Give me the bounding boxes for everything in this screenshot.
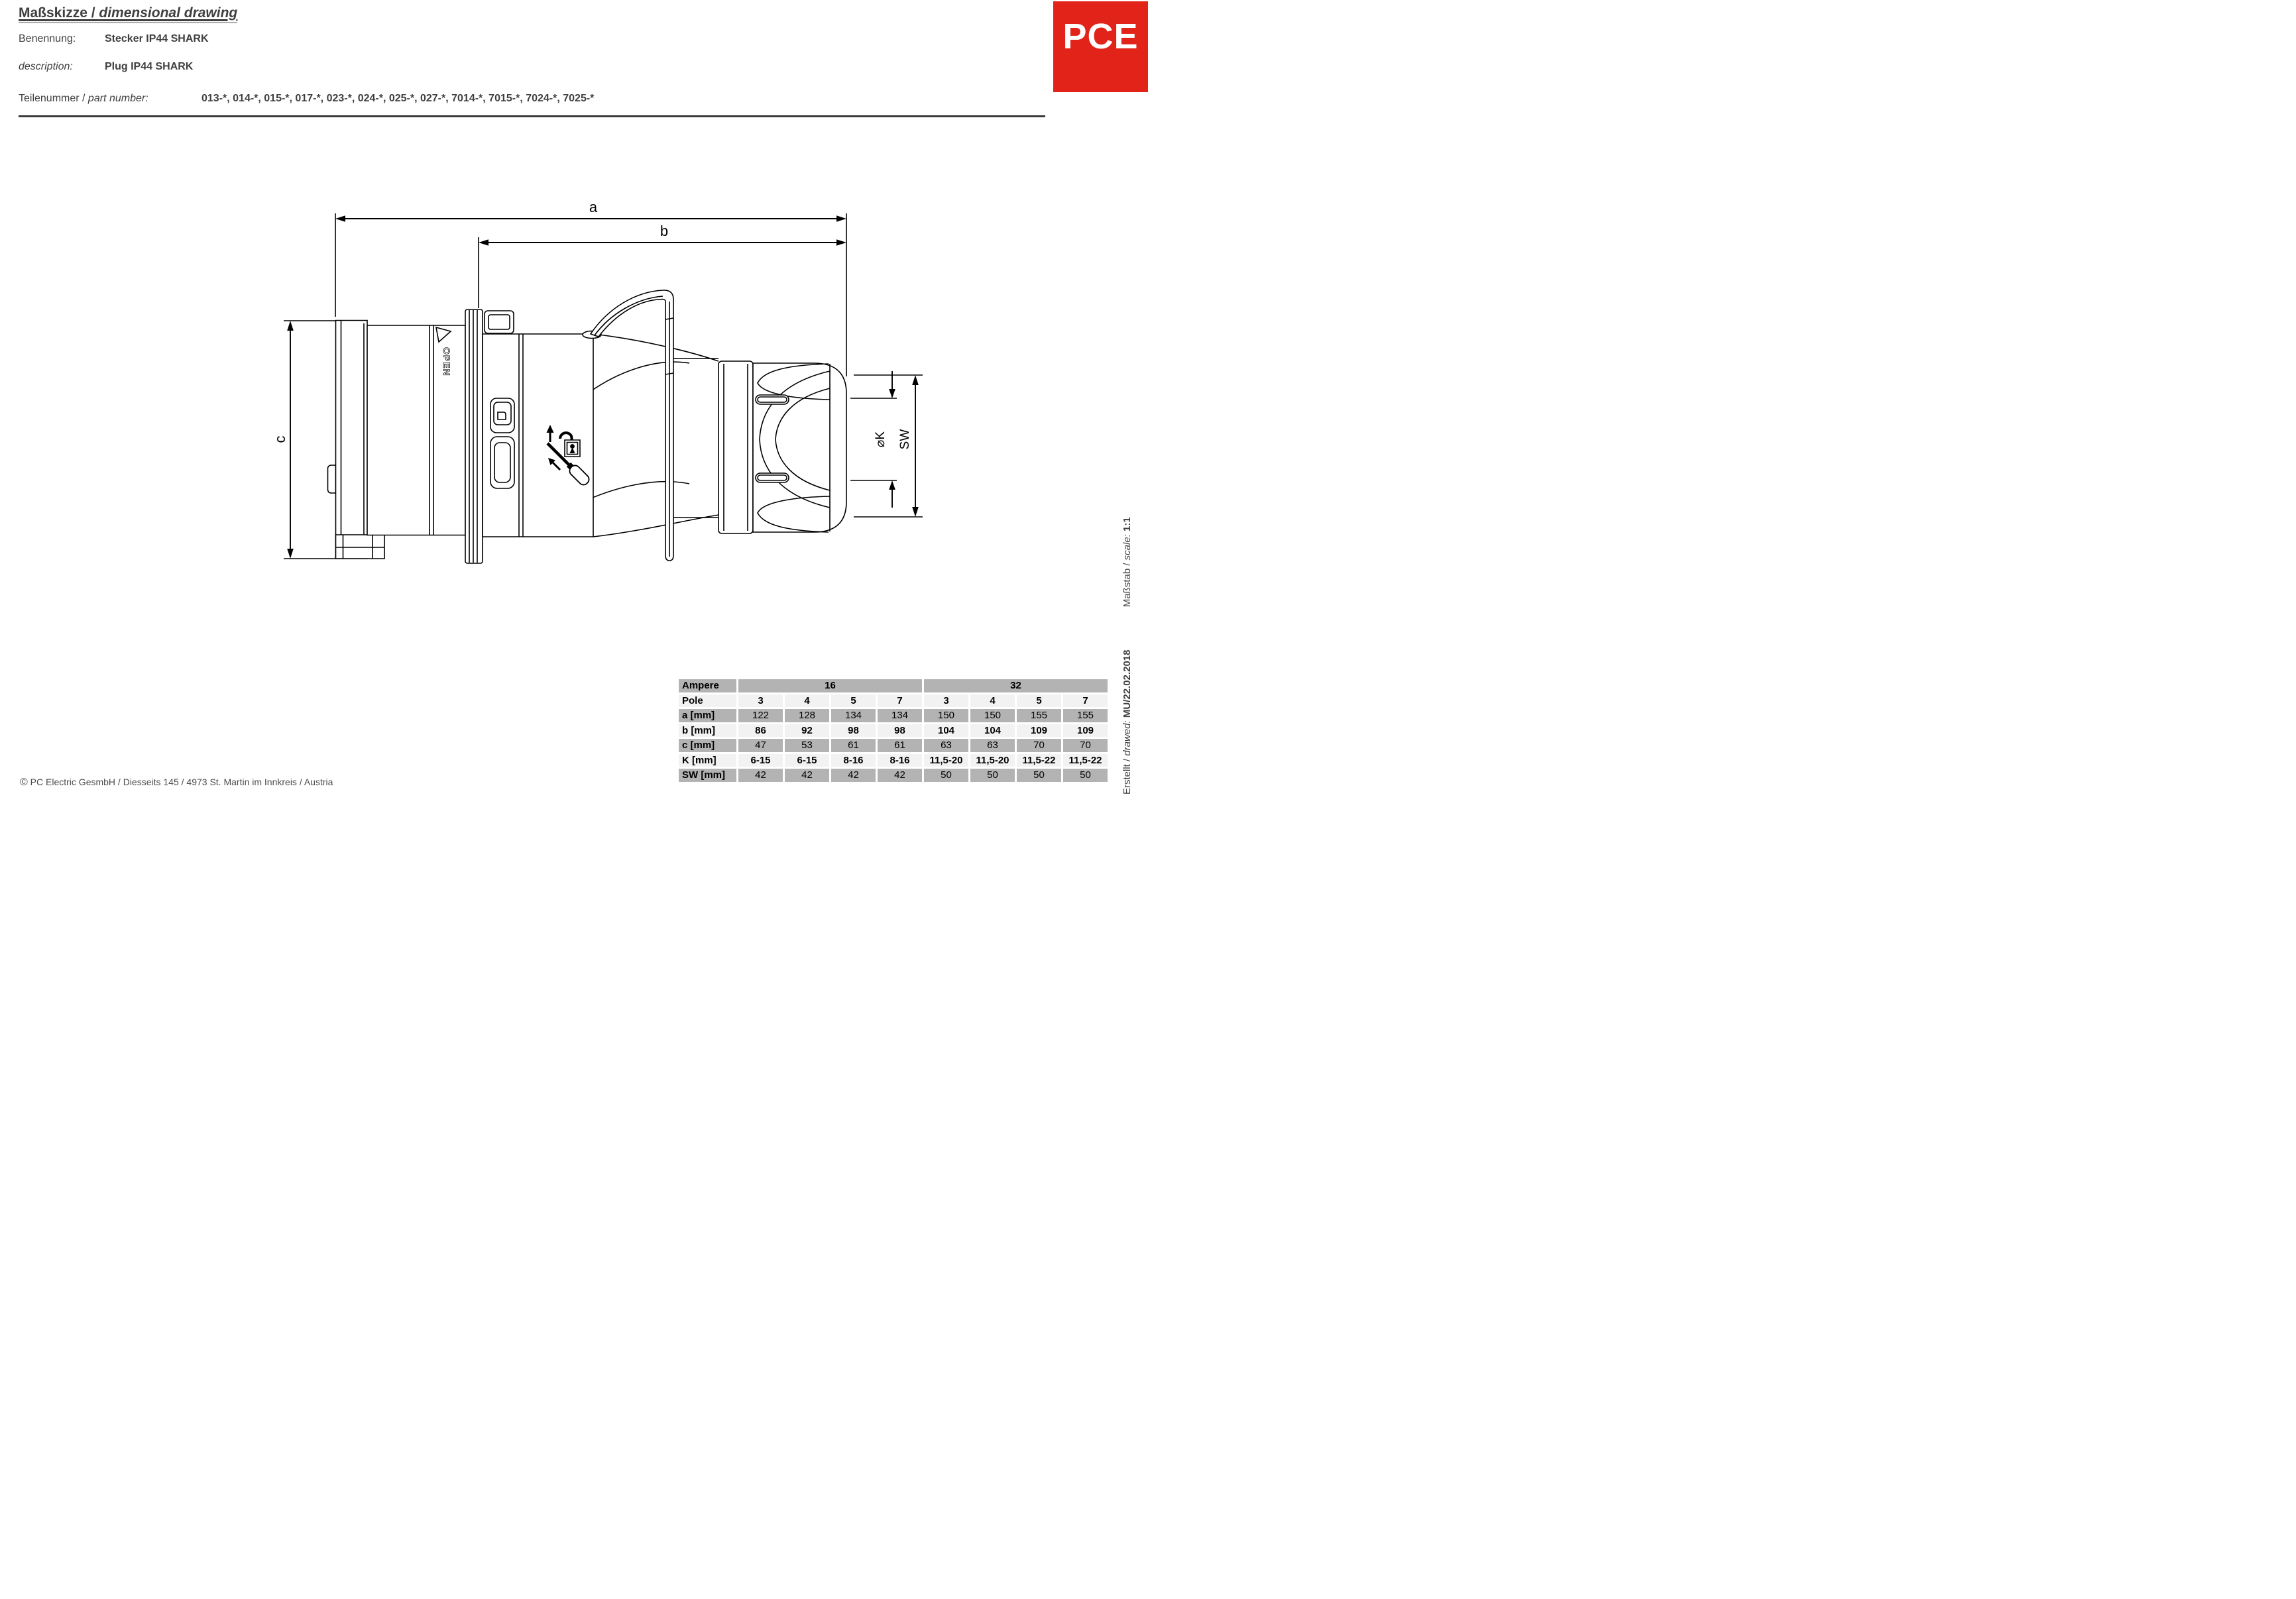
drawed-value: MU/22.02.2018 <box>1121 650 1133 718</box>
copyright-icon: © <box>20 777 28 788</box>
dimension-table: Ampere 16 32 Pole 3 4 5 7 3 4 5 7 a [mm]… <box>679 679 1108 782</box>
dim-a-label: a <box>589 199 598 215</box>
pole-label: Pole <box>679 694 736 708</box>
open-label: OPEN <box>441 347 452 376</box>
body-rear-section: OPEN <box>367 325 465 535</box>
dim-b-label: b <box>660 223 668 239</box>
table-row-b: b [mm] 86 92 98 98 104 104 109 109 <box>679 724 1108 738</box>
dim-k-label: ⌀K <box>874 431 888 447</box>
dimension-k: ⌀K <box>850 371 897 508</box>
dimension-sw: SW <box>854 375 923 517</box>
body-front-section <box>483 311 593 537</box>
rear-cap-bump <box>328 465 336 493</box>
ampere-label: Ampere <box>679 679 736 692</box>
dimension-c: c <box>272 321 335 559</box>
drawing-info-sidebar: Erstellt / drawed: MU/22.02.2018 Maßstab… <box>1121 490 1135 795</box>
fin-slot-upper <box>756 395 789 404</box>
plug-cone-section <box>582 334 718 537</box>
ampere-32: 32 <box>924 679 1108 692</box>
locking-ring <box>465 309 483 563</box>
release-lever <box>583 290 673 561</box>
dim-sw-label: SW <box>898 429 912 450</box>
table-row-pole: Pole 3 4 5 7 3 4 5 7 <box>679 694 1108 708</box>
copyright-line: © PC Electric GesmbH / Diesseits 145 / 4… <box>20 777 333 789</box>
fin-slot-lower <box>756 473 789 482</box>
table-row-sw: SW [mm] 42 42 42 42 50 50 50 50 <box>679 769 1108 782</box>
gland-flange <box>718 361 753 533</box>
table-row-k: K [mm] 6-15 6-15 8-16 8-16 11,5-20 11,5-… <box>679 754 1108 767</box>
table-row-a: a [mm] 122 128 134 134 150 150 155 155 <box>679 709 1108 722</box>
table-row-ampere: Ampere 16 32 <box>679 679 1108 692</box>
scale-value: 1:1 <box>1121 517 1133 531</box>
dim-c-label: c <box>272 436 288 443</box>
table-row-c: c [mm] 47 53 61 61 63 63 70 70 <box>679 739 1108 752</box>
datasheet-page: Maßskizze / dimensional drawing Benennun… <box>0 0 1148 799</box>
ampere-16: 16 <box>738 679 922 692</box>
gland-nut <box>753 363 846 532</box>
